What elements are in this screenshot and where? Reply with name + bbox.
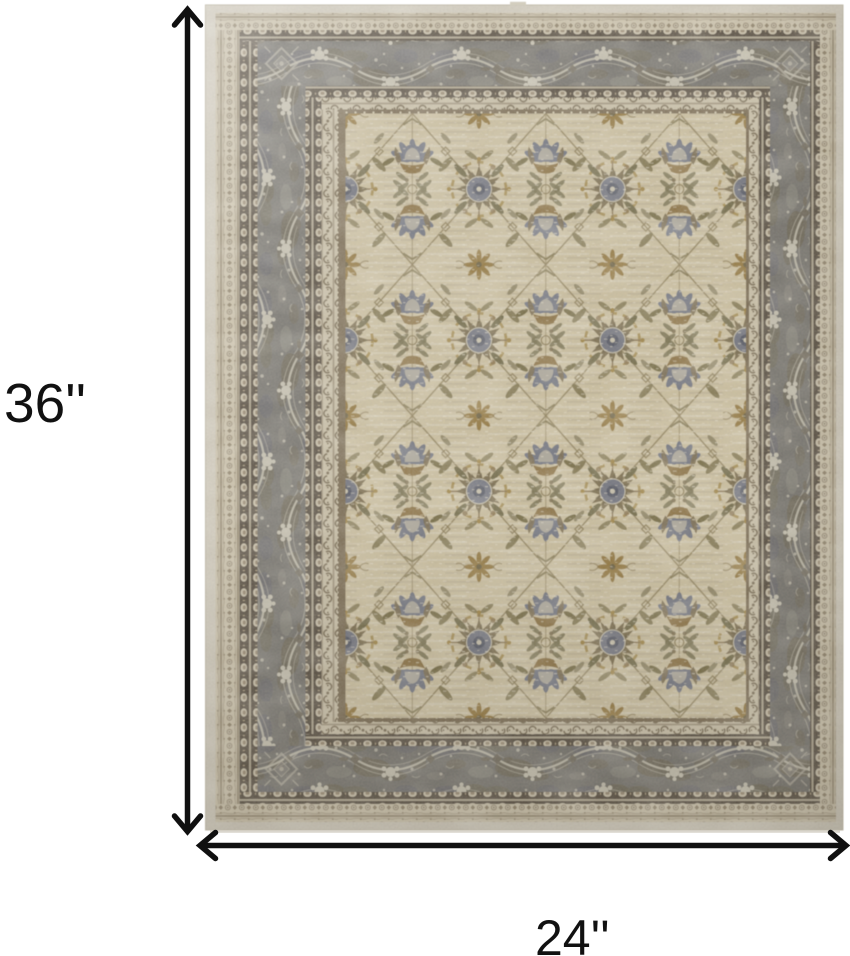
svg-text:24'': 24'' xyxy=(535,910,610,956)
svg-text:36'': 36'' xyxy=(4,372,86,434)
